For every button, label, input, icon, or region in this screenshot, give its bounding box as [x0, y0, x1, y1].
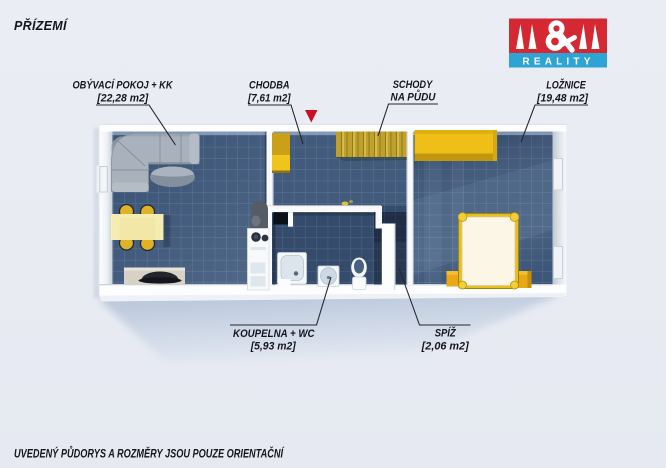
svg-text:NA PŮDU: NA PŮDU: [391, 90, 437, 104]
svg-text:[7,61 m2]: [7,61 m2]: [247, 92, 291, 104]
svg-text:PŘÍZEMÍ: PŘÍZEMÍ: [14, 18, 69, 33]
svg-text:REALITY: REALITY: [522, 57, 594, 68]
svg-text:UVEDENÝ PŮDORYS A ROZMĚRY JSOU: UVEDENÝ PŮDORYS A ROZMĚRY JSOU POUZE ORI…: [14, 447, 285, 461]
svg-text:SCHODY: SCHODY: [393, 79, 434, 91]
svg-text:OBÝVACÍ POKOJ + KK: OBÝVACÍ POKOJ + KK: [73, 79, 174, 92]
svg-text:CHODBA: CHODBA: [249, 80, 290, 92]
svg-text:[19,48 m2]: [19,48 m2]: [536, 92, 588, 104]
svg-text:LOŽNICE: LOŽNICE: [546, 79, 586, 92]
svg-text:SPÍŽ: SPÍŽ: [435, 327, 456, 340]
svg-text:[5,93 m2]: [5,93 m2]: [250, 340, 296, 352]
svg-text:[22,28 m2]: [22,28 m2]: [96, 92, 148, 104]
svg-text:KOUPELNA + WC: KOUPELNA + WC: [233, 328, 315, 340]
svg-text:[2,06 m2]: [2,06 m2]: [421, 340, 469, 352]
